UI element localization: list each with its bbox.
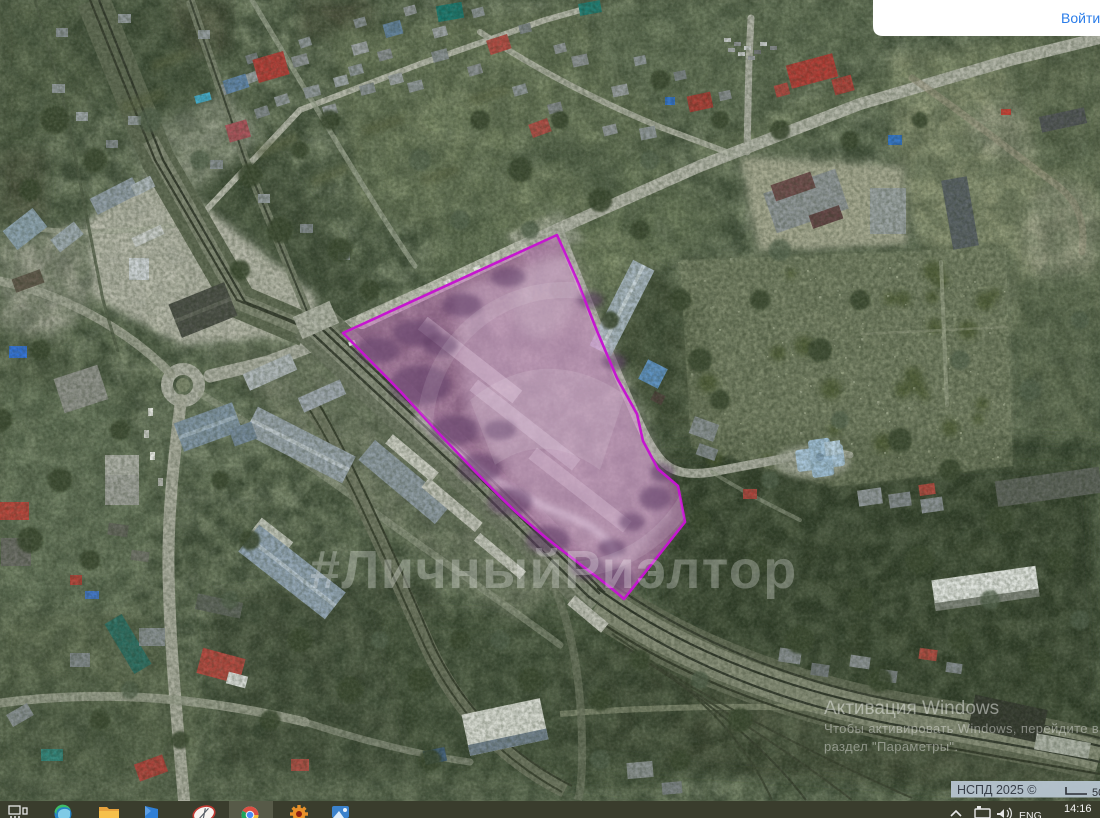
svg-text:Войти: Войти bbox=[1061, 10, 1100, 26]
svg-text:раздел "Параметры".: раздел "Параметры". bbox=[824, 739, 958, 754]
svg-text:#ЛичныйРиэлтор: #ЛичныйРиэлтор bbox=[310, 540, 798, 600]
svg-text:НСПД 2025 ©: НСПД 2025 © bbox=[957, 783, 1037, 797]
svg-text:50: 50 bbox=[1092, 787, 1100, 799]
svg-text:Активация Windows: Активация Windows bbox=[824, 698, 999, 719]
svg-text:14:16: 14:16 bbox=[1064, 803, 1092, 815]
svg-text:Чтобы активировать Windows, пе: Чтобы активировать Windows, перейдите в bbox=[824, 721, 1099, 736]
svg-text:ENG: ENG bbox=[1019, 810, 1042, 818]
